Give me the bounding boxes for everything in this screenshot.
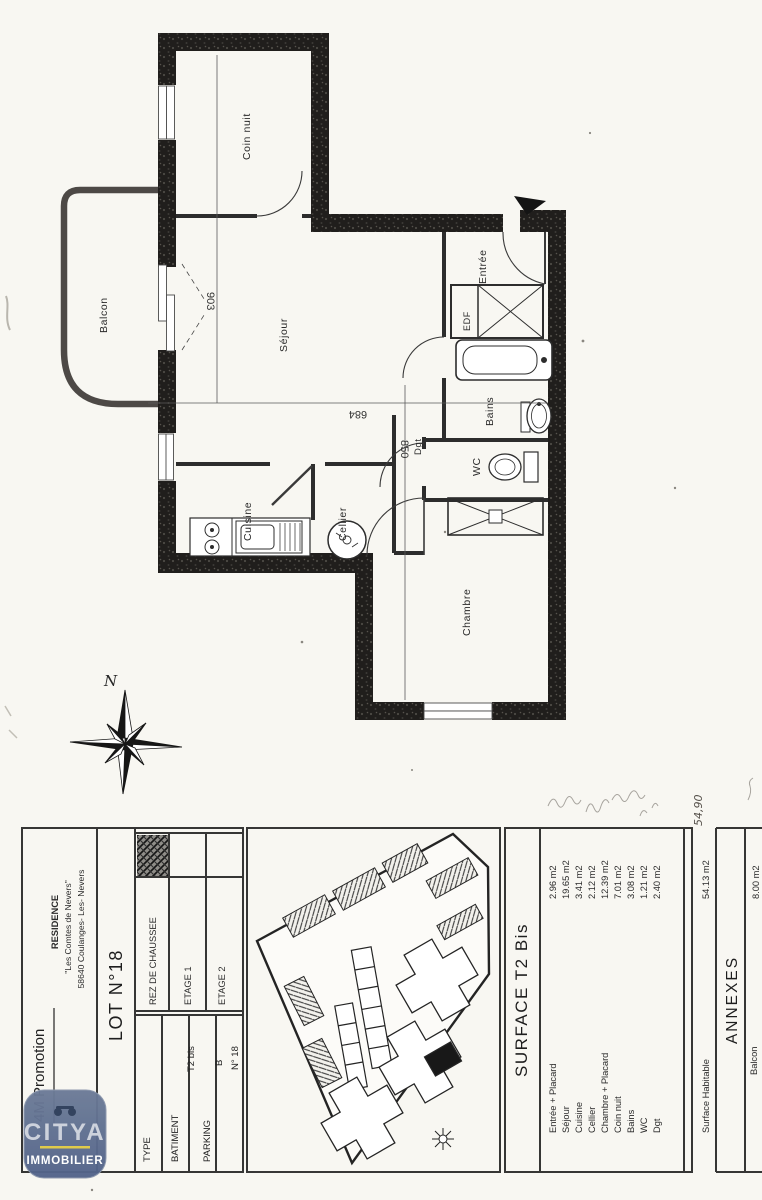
toilet — [489, 452, 538, 482]
batiment-value: B — [214, 1060, 225, 1066]
logo-accent-line — [40, 1146, 90, 1149]
room-label-balcon: Balcon — [98, 297, 110, 333]
room-label-cellier: Cellier — [337, 507, 349, 541]
window-coin-nuit — [159, 86, 175, 139]
door-cuisine-leaf — [272, 466, 312, 505]
dim-850: 850 — [398, 440, 410, 458]
annexe-balcon-label: Balcon — [749, 1047, 759, 1075]
site-mini-compass — [432, 1128, 454, 1150]
room-label-chambre: Chambre — [461, 589, 473, 636]
batiment-label: BATIMENT — [170, 1114, 181, 1162]
surface-row-name: Entrée + Placard — [548, 1063, 558, 1133]
surface-row-name: Cuisine — [574, 1102, 584, 1133]
floor-levels: REZ DE CHAUSSEE ETAGE 1 ETAGE 2 — [148, 917, 227, 1005]
dim-684: 684 — [349, 408, 367, 420]
chambre-placard — [448, 498, 543, 535]
plan-canvas: Coin nuit Balcon Séjour Entrée EDF Bains… — [0, 0, 762, 1200]
residence-address: 58640 Coulanges- Les- Nevers — [76, 870, 86, 989]
room-label-wc: WC — [471, 457, 483, 476]
surface-row-area: 2.96 m2 — [548, 865, 558, 899]
surface-row-area: 7.01 m2 — [613, 865, 623, 899]
surface-row-area: 19.65 m2 — [561, 860, 571, 899]
compass-north-label: N — [103, 672, 118, 690]
habitable-label: Surface Habitable — [701, 1059, 711, 1133]
surface-row-names: Entrée + Placard Séjour Cuisine Cellier … — [548, 1053, 662, 1133]
lot-number: LOT N°18 — [106, 949, 126, 1041]
surface-row-name: Cellier — [587, 1107, 597, 1133]
room-label-dgt: Dgt — [413, 438, 424, 455]
bathtub — [456, 340, 552, 380]
surface-row-area: 1.21 m2 — [639, 865, 649, 899]
handwritten-notes: 54,90 — [548, 778, 753, 826]
room-label-entree: Entrée — [477, 249, 489, 284]
surface-row-name: Séjour — [561, 1106, 571, 1133]
bay-window-balcony — [159, 265, 175, 351]
surface-row-area: 2.12 m2 — [587, 865, 597, 899]
room-label-cuisine: Cuisine — [242, 502, 254, 541]
parking-label: PARKING — [202, 1120, 213, 1162]
logo-brand-text: CITYA — [24, 1119, 106, 1146]
annexes-title: ANNEXES — [724, 956, 741, 1044]
surface-row-area: 12.39 m2 — [600, 860, 610, 899]
window-chambre — [424, 703, 492, 719]
bath-sink — [521, 399, 551, 433]
room-label-coin-nuit: Coin nuit — [241, 113, 253, 160]
surface-row-name: Bains — [626, 1109, 636, 1133]
surface-row-name: WC — [639, 1117, 649, 1133]
residence-info: RESIDENCE "Les Comtes de Nevers" 58640 C… — [31, 870, 86, 1124]
surface-row-areas: 2.96 m2 19.65 m2 3.41 m2 2.12 m2 12.39 m… — [548, 860, 662, 899]
surface-row-name: Chambre + Placard — [600, 1053, 610, 1133]
balcony-wall — [64, 190, 158, 404]
surface-row-name: Dgt — [652, 1118, 662, 1133]
rdc-hatch-swatch — [137, 835, 168, 876]
room-label-sejour: Séjour — [278, 318, 290, 352]
dimension-labels: 903 684 850 — [204, 292, 410, 458]
dim-903: 903 — [204, 292, 216, 310]
type-value: T2 bis — [186, 1046, 197, 1072]
floor-rdc: REZ DE CHAUSSEE — [148, 917, 158, 1005]
compass-rose: N — [70, 672, 182, 794]
surface-table: SURFACE T2 Bis Entrée + Placard Séjour C… — [512, 778, 761, 1133]
door-entrance — [503, 232, 545, 284]
lot-attributes: TYPE T2 bis BATIMENT B PARKING N° 18 — [142, 1046, 241, 1162]
room-label-bains: Bains — [484, 397, 496, 426]
type-label: TYPE — [142, 1137, 153, 1162]
residence-title: RESIDENCE — [50, 895, 60, 949]
residence-name: "Les Comtes de Nevers" — [63, 880, 73, 974]
logo-tagline-text: IMMOBILIER — [27, 1155, 104, 1167]
annexe-balcon-value: 8.00 m2 — [751, 865, 761, 899]
citya-logo: CITYA IMMOBILIER — [24, 1090, 106, 1178]
floor-etage1: ETAGE 1 — [183, 966, 193, 1005]
surface-row-area: 3.41 m2 — [574, 865, 584, 899]
surface-title: SURFACE T2 Bis — [512, 923, 531, 1077]
window-sejour-low — [159, 434, 174, 480]
door-bains — [403, 337, 444, 378]
habitable-value: 54.13 m2 — [701, 860, 711, 899]
partitions — [176, 216, 548, 553]
room-label-edf: EDF — [462, 311, 472, 331]
floor-etage2: ETAGE 2 — [217, 966, 227, 1005]
site-plan — [257, 834, 489, 1170]
scanned-floor-plan-sheet: Coin nuit Balcon Séjour Entrée EDF Bains… — [0, 0, 762, 1200]
surface-row-area: 2.40 m2 — [652, 865, 662, 899]
parking-value: N° 18 — [230, 1046, 241, 1070]
surface-row-area: 3.08 m2 — [626, 865, 636, 899]
handwritten-total: 54,90 — [692, 795, 705, 827]
surface-row-name: Coin nuit — [613, 1096, 623, 1133]
door-coin-nuit — [257, 171, 302, 216]
